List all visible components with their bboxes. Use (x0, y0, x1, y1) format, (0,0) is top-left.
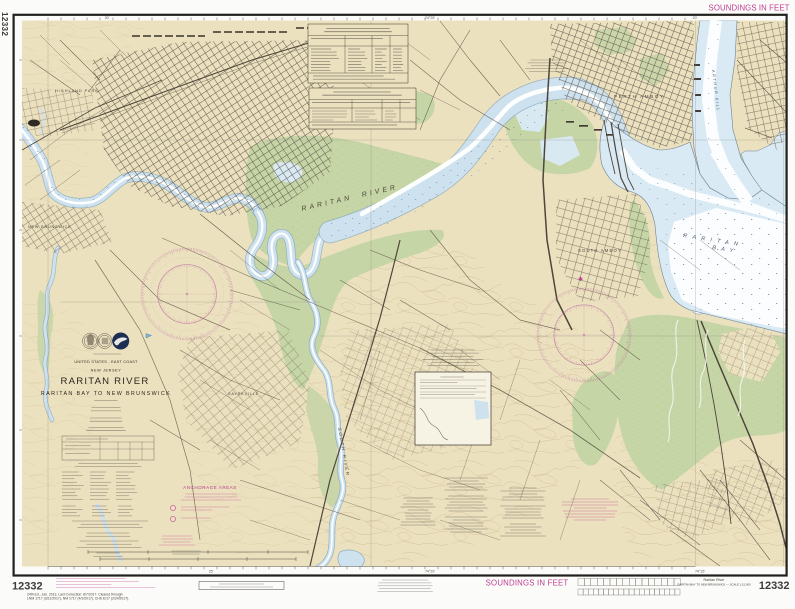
svg-text:NEW BRUNSWICK: NEW BRUNSWICK (28, 225, 72, 229)
svg-text:25': 25' (209, 570, 214, 574)
svg-text:SOUTH AMBOY: SOUTH AMBOY (578, 248, 622, 253)
svg-text:30': 30' (105, 16, 110, 20)
svg-text:LNM 1717 (3/21/2017), NM 1717: LNM 1717 (3/21/2017), NM 1717 (4/1/2017)… (27, 597, 129, 601)
svg-text:Raritan River: Raritan River (704, 578, 726, 582)
svg-text:74°20': 74°20' (425, 570, 435, 574)
svg-text:NEW JERSEY: NEW JERSEY (91, 369, 122, 373)
svg-text:12332: 12332 (12, 581, 43, 593)
svg-text:UNITED STATES - EAST COAST: UNITED STATES - EAST COAST (74, 360, 138, 364)
svg-text:ANCHORAGE AREAS: ANCHORAGE AREAS (183, 485, 237, 490)
svg-text:12332: 12332 (759, 580, 790, 592)
svg-text:12332: 12332 (0, 12, 9, 36)
svg-text:74°15': 74°15' (695, 570, 705, 574)
svg-text:74°25': 74°25' (425, 16, 435, 20)
svg-text:SAYREVILLE: SAYREVILLE (228, 392, 259, 396)
svg-text:RARITAN RIVER: RARITAN RIVER (61, 376, 150, 387)
svg-text:HIGHLAND PARK: HIGHLAND PARK (55, 89, 99, 93)
svg-text:✱: ✱ (578, 276, 583, 283)
svg-text:RARITAN BAY TO NEW BRUNSWICK: RARITAN BAY TO NEW BRUNSWICK (41, 391, 171, 397)
svg-text:SOUNDINGS IN FEET: SOUNDINGS IN FEET (709, 4, 790, 13)
svg-text:PERTH AMBOY: PERTH AMBOY (614, 94, 665, 99)
svg-text:20': 20' (693, 16, 698, 20)
svg-text:RARITAN BAY TO NEW BRUNSWICK —: RARITAN BAY TO NEW BRUNSWICK — SCALE 1:1… (677, 583, 751, 587)
svg-text:SOUNDINGS IN FEET: SOUNDINGS IN FEET (486, 579, 569, 588)
